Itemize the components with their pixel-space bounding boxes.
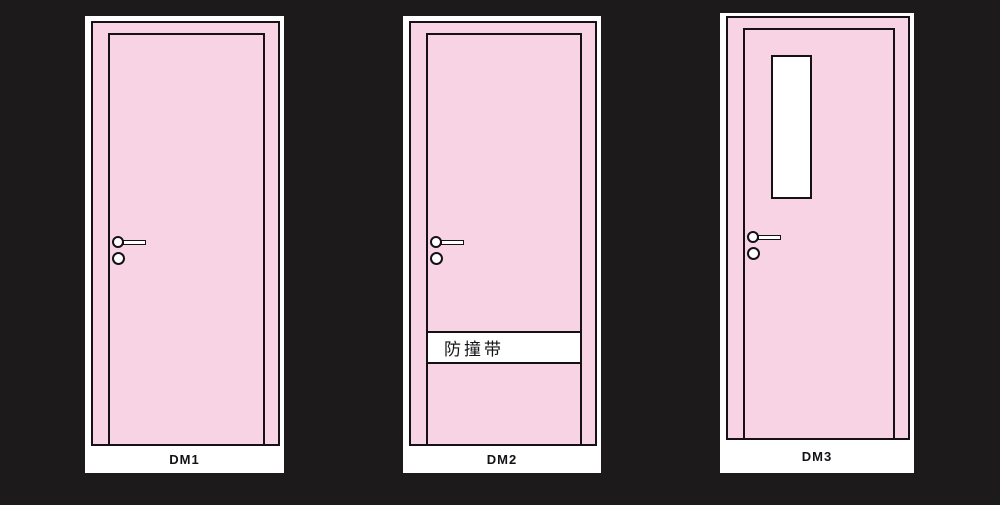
door-label: DM2: [487, 452, 517, 467]
door-unit-dm2: 防撞带 DM2: [403, 16, 601, 473]
anti-collision-band-label: 防撞带: [444, 335, 504, 360]
door-label-strip: DM3: [720, 440, 914, 473]
door-handle: [747, 228, 791, 264]
door-label-strip: DM1: [85, 446, 284, 473]
door-frame: [91, 21, 280, 446]
lock-knob-icon: [430, 252, 443, 265]
door-leaf: 防撞带: [426, 33, 582, 444]
door-frame: 防撞带: [409, 21, 597, 446]
door-unit-dm3: DM3: [720, 13, 914, 473]
door-leaf: [743, 28, 895, 438]
door-unit-dm1: DM1: [85, 16, 284, 473]
handle-lever-icon: [758, 235, 781, 240]
vision-panel-window: [771, 55, 812, 199]
door-leaf: [108, 33, 265, 444]
door-handle: [112, 233, 156, 269]
door-handle: [430, 233, 474, 269]
lock-knob-icon: [747, 247, 760, 260]
lock-knob-icon: [112, 252, 125, 265]
door-label: DM3: [802, 449, 832, 464]
door-label: DM1: [169, 452, 199, 467]
door-frame: [726, 16, 910, 440]
anti-collision-band: 防撞带: [426, 331, 582, 364]
diagram-canvas: DM1 防撞带 DM2: [0, 0, 1000, 505]
door-label-strip: DM2: [403, 446, 601, 473]
handle-lever-icon: [123, 240, 146, 245]
handle-lever-icon: [441, 240, 464, 245]
